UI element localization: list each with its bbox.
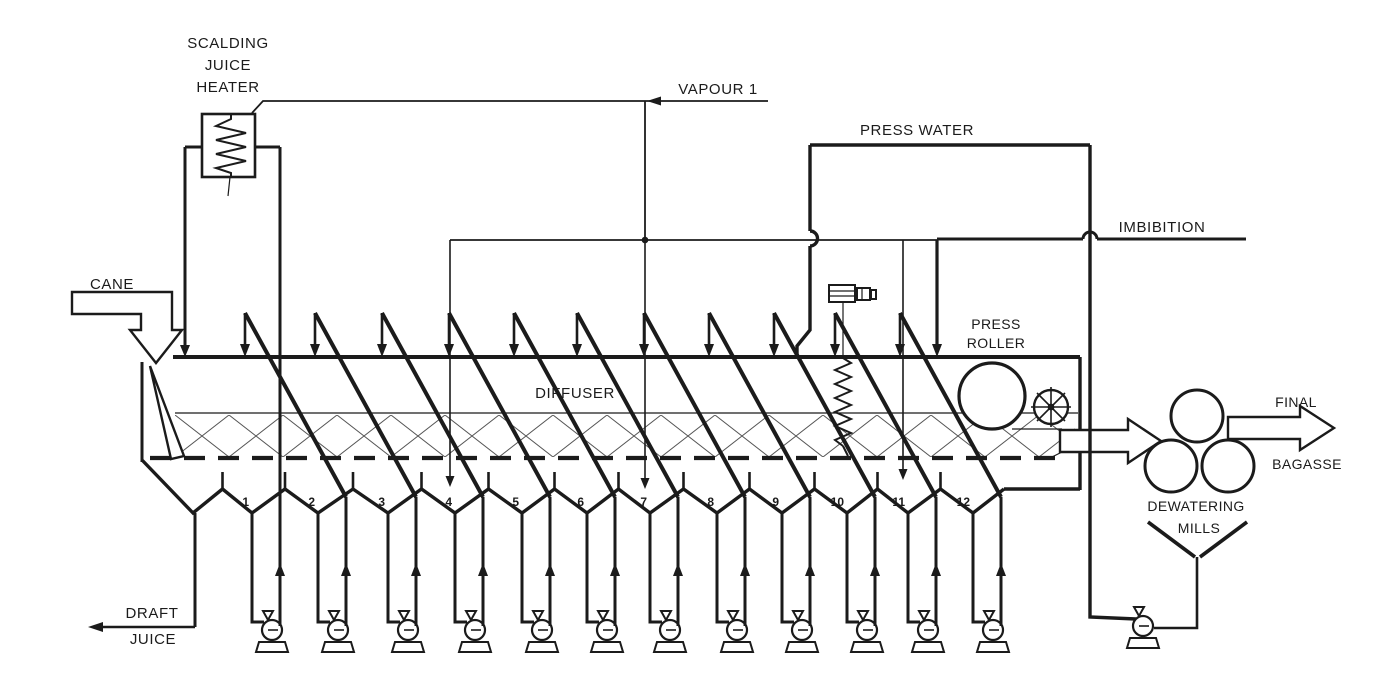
stage-number: 9	[772, 495, 779, 509]
pump-valve	[263, 611, 273, 620]
stage-number: 12	[957, 495, 971, 509]
stage-circuit-4: 4	[377, 313, 491, 652]
pump-icon	[459, 611, 491, 652]
stage-number: 10	[831, 495, 845, 509]
stage-number: 7	[640, 495, 647, 509]
riser-arrowhead	[478, 563, 488, 576]
pump-base	[851, 642, 883, 652]
rotary-wheel-icon	[1031, 387, 1071, 427]
press-roller	[959, 363, 1025, 429]
trough-downpipe	[455, 511, 467, 622]
pump-valve	[466, 611, 476, 620]
trough-downpipe	[587, 511, 599, 622]
screw-drive-motor-icon	[829, 285, 876, 302]
press-roller-label-1: PRESS	[971, 316, 1020, 332]
bagasse-label: BAGASSE	[1272, 456, 1342, 472]
pump-icon	[977, 611, 1009, 652]
pump-base	[654, 642, 686, 652]
dewatering-mills-section: FINAL BAGASSE DEWATERING MILLS	[1060, 390, 1342, 557]
press-water-riser	[1090, 145, 1136, 619]
stage-circuit-7: 7	[572, 313, 686, 652]
diffuser-label: DIFFUSER	[535, 385, 615, 402]
diffuser-flow-diagram: DIFFUSER 123456789101112 PRESS ROLLER	[0, 0, 1396, 688]
pump-base	[912, 642, 944, 652]
recirculation-diagonal	[644, 313, 745, 497]
trough-downpipe	[908, 511, 920, 622]
cane-label: CANE	[90, 276, 134, 293]
stage-number: 1	[242, 495, 249, 509]
heater-label-1: SCALDING	[187, 35, 269, 52]
mills-label: MILLS	[1178, 520, 1220, 536]
pipe-junction-dot	[642, 237, 649, 244]
stage-number: 5	[512, 495, 519, 509]
recirculation-diagonal	[382, 313, 483, 497]
pump-icon	[591, 611, 623, 652]
stage-number: 3	[378, 495, 385, 509]
pump-valve	[1134, 607, 1144, 616]
trough-downpipe	[973, 511, 985, 622]
riser-arrowhead	[341, 563, 351, 576]
pump-icon	[786, 611, 818, 652]
stage-number: 2	[308, 495, 315, 509]
injection-arrowhead-stage11	[899, 469, 908, 480]
vapour-1-line: VAPOUR 1	[252, 81, 768, 240]
trough-downpipe	[522, 511, 534, 622]
pump-base	[1127, 638, 1159, 648]
press-water-pipe-hop	[810, 231, 818, 246]
pump-base	[526, 642, 558, 652]
trough-downpipe	[318, 511, 330, 622]
pump-icon	[912, 611, 944, 652]
stage-circuit-2: 2	[240, 313, 354, 652]
trough-downpipe	[388, 511, 400, 622]
juice-label: JUICE	[130, 631, 176, 648]
draft-juice-outlet: DRAFT JUICE	[88, 513, 195, 648]
recirculation-diagonal	[709, 313, 810, 497]
pump-base	[977, 642, 1009, 652]
riser-arrowhead	[870, 563, 880, 576]
recirculation-diagonal	[514, 313, 615, 497]
pump-valve	[984, 611, 994, 620]
stage-circuit-10: 10	[769, 313, 883, 652]
scalding-juice-heater: SCALDING JUICE HEATER	[180, 35, 280, 357]
pump-icon	[851, 611, 883, 652]
recirculation-diagonal	[449, 313, 550, 497]
draft-label: DRAFT	[126, 605, 179, 622]
cane-flow-arrow	[72, 292, 182, 363]
pump-valve	[533, 611, 543, 620]
pump-valve	[399, 611, 409, 620]
recirculation-diagonal	[577, 313, 678, 497]
trough-downpipe	[252, 511, 264, 622]
riser-arrowhead	[275, 563, 285, 576]
pump-icon	[322, 611, 354, 652]
pump-base	[786, 642, 818, 652]
injection-arrowhead-stage7	[641, 478, 650, 489]
riser-arrowhead	[996, 563, 1006, 576]
cane-inlet: CANE	[72, 276, 182, 363]
mills-juice-downpipe	[1154, 557, 1197, 628]
pump-valve	[661, 611, 671, 620]
pump-icon	[721, 611, 753, 652]
final-bagasse-arrow	[1228, 406, 1334, 450]
recirculation-diagonal	[774, 313, 875, 497]
riser-arrowhead	[931, 563, 941, 576]
pump-base	[322, 642, 354, 652]
press-water-downpipe-lower	[797, 246, 810, 358]
pump-icon	[392, 611, 424, 652]
press-water-label: PRESS WATER	[860, 122, 974, 139]
riser-arrowhead	[610, 563, 620, 576]
pump-valve	[329, 611, 339, 620]
riser-arrowhead	[673, 563, 683, 576]
trough-downpipe	[782, 511, 794, 622]
pump-valve	[598, 611, 608, 620]
mill-roller-right	[1202, 440, 1254, 492]
stage-number: 8	[707, 495, 714, 509]
heater-label-2: JUICE	[205, 57, 251, 74]
final-label: FINAL	[1275, 394, 1317, 410]
riser-arrowhead	[411, 563, 421, 576]
injection-arrowhead-stage4	[446, 476, 455, 487]
pump-icon	[256, 611, 288, 652]
vapour-1-label: VAPOUR 1	[678, 81, 758, 98]
bagasse-mat-hatch	[175, 415, 1075, 457]
press-roller-label-2: ROLLER	[967, 335, 1025, 351]
pump-icon	[526, 611, 558, 652]
heater-label-3: HEATER	[196, 79, 259, 96]
stage-circuit-1: 1	[242, 147, 288, 652]
heater-shell	[202, 114, 255, 177]
pump-base	[591, 642, 623, 652]
vapour-arrowhead	[647, 97, 661, 106]
vapour-supply-line	[252, 101, 768, 113]
mill-roller-top	[1171, 390, 1223, 442]
stage-number: 11	[892, 495, 905, 509]
dewatering-label: DEWATERING	[1147, 498, 1244, 514]
pump-valve	[728, 611, 738, 620]
draft-juice-arrowhead	[88, 622, 103, 632]
stage-number: 4	[445, 495, 452, 509]
pump-base	[256, 642, 288, 652]
imbibition-label: IMBIBITION	[1119, 219, 1206, 236]
stage-circuit-3: 3	[310, 313, 424, 652]
pump-valve	[793, 611, 803, 620]
trough-downpipe	[717, 511, 729, 622]
riser-arrowhead	[805, 563, 815, 576]
riser-arrowhead	[545, 563, 555, 576]
pump-base	[721, 642, 753, 652]
pump-base	[459, 642, 491, 652]
pump-icon	[654, 611, 686, 652]
pump-valve	[919, 611, 929, 620]
stage-number: 6	[577, 495, 584, 509]
pump-base	[392, 642, 424, 652]
riser-arrowhead	[740, 563, 750, 576]
mill-roller-left	[1145, 440, 1197, 492]
pump-valve	[858, 611, 868, 620]
trough-downpipe	[847, 511, 859, 622]
trough-downpipe	[650, 511, 662, 622]
heater-coil-tail	[228, 177, 230, 196]
